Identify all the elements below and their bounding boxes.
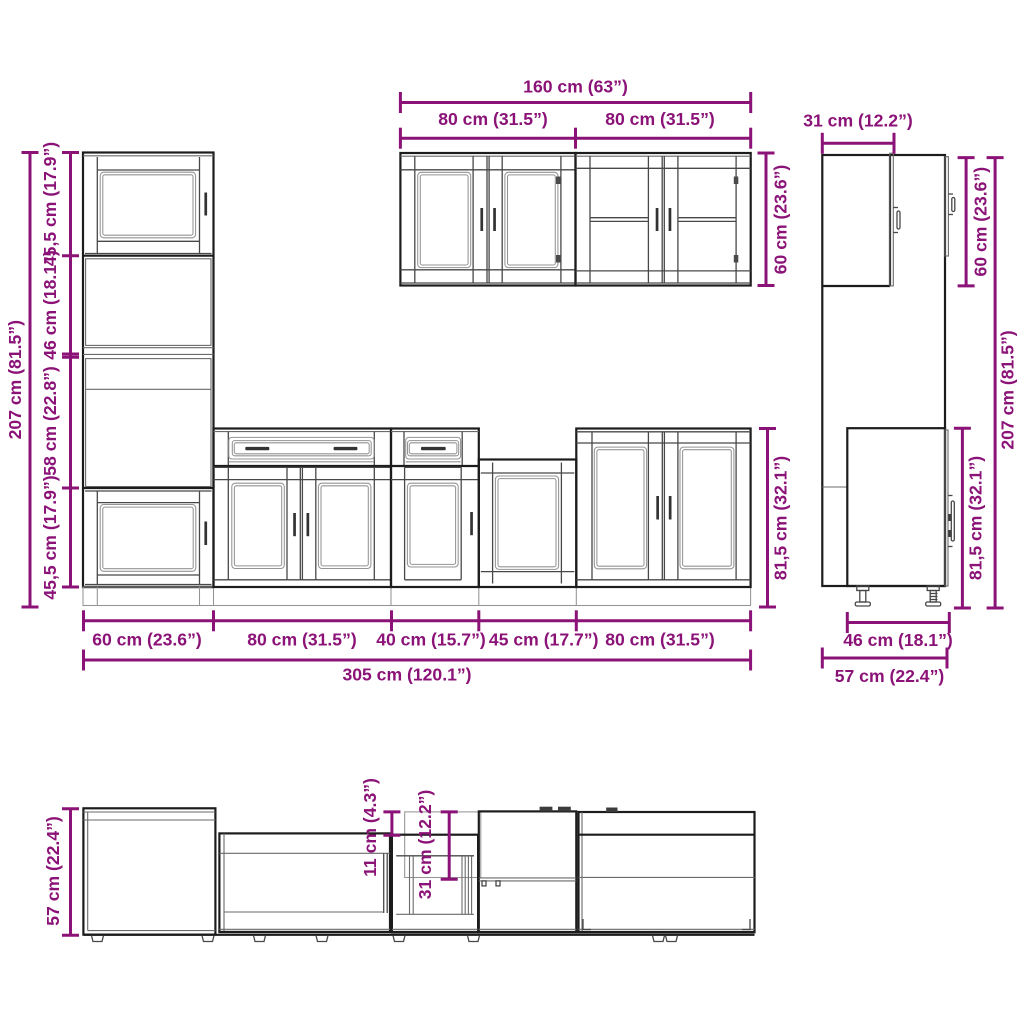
svg-text:11 cm (4.3”): 11 cm (4.3”) [360,778,380,877]
svg-text:80 cm (31.5”): 80 cm (31.5”) [605,629,715,649]
svg-text:81,5 cm (32.1”): 81,5 cm (32.1”) [771,456,791,580]
svg-text:80 cm (31.5”): 80 cm (31.5”) [438,109,548,129]
svg-text:46 cm (18.1”): 46 cm (18.1”) [843,630,953,650]
svg-text:46 cm (18.1”): 46 cm (18.1”) [40,250,60,360]
svg-text:58 cm (22.8”): 58 cm (22.8”) [40,366,60,476]
svg-text:45 cm (17.7”): 45 cm (17.7”) [489,629,599,649]
svg-text:31 cm (12.2”): 31 cm (12.2”) [415,790,435,900]
svg-text:57 cm (22.4”): 57 cm (22.4”) [43,816,63,926]
svg-text:40 cm (15.7”): 40 cm (15.7”) [376,629,486,649]
svg-text:160 cm (63”): 160 cm (63”) [523,76,628,96]
svg-text:31 cm (12.2”): 31 cm (12.2”) [803,110,913,130]
svg-text:60 cm (23.6”): 60 cm (23.6”) [971,167,991,277]
svg-text:60 cm (23.6”): 60 cm (23.6”) [771,165,791,275]
svg-text:207 cm (81.5”): 207 cm (81.5”) [998,330,1018,449]
svg-text:81,5 cm (32.1”): 81,5 cm (32.1”) [966,456,986,580]
svg-text:45,5 cm (17.9”): 45,5 cm (17.9”) [40,475,60,599]
svg-text:45,5 cm (17.9”): 45,5 cm (17.9”) [40,142,60,266]
svg-text:80 cm (31.5”): 80 cm (31.5”) [247,629,357,649]
svg-text:60 cm (23.6”): 60 cm (23.6”) [92,629,202,649]
svg-text:80 cm (31.5”): 80 cm (31.5”) [605,109,715,129]
svg-text:207 cm (81.5”): 207 cm (81.5”) [5,320,25,439]
svg-text:305 cm (120.1”): 305 cm (120.1”) [342,665,471,685]
svg-text:57 cm (22.4”): 57 cm (22.4”) [835,666,945,686]
